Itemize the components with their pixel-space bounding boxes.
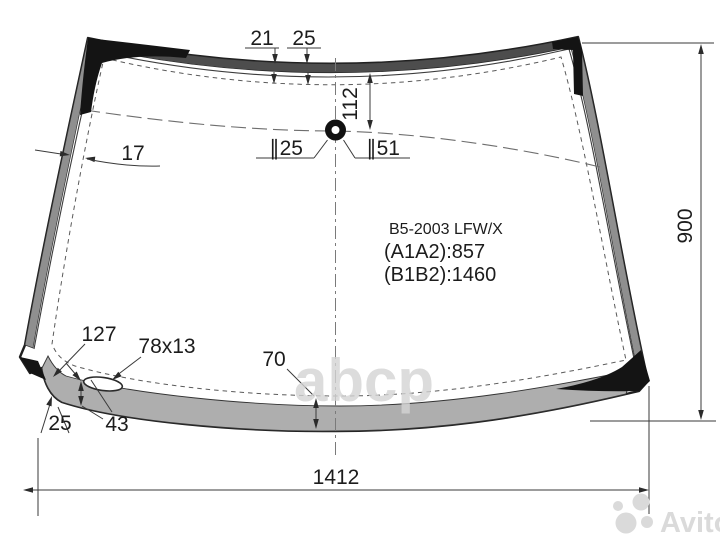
dim-label-21: 21: [250, 27, 273, 50]
dim-label-25-top: 25: [292, 27, 315, 50]
windshield-technical-drawing: 21 25 112 17 ∥25 ∥51 B5-2003 LFW/X (: [0, 0, 720, 540]
dim-label-900: 900: [674, 208, 697, 243]
dim-label-17: 17: [121, 142, 144, 165]
dim-label-78x13: 78x13: [138, 335, 195, 358]
spec-a1a2: (A1A2):857: [384, 241, 485, 263]
dim-label-112: 112: [339, 87, 362, 120]
watermark-abcp: abcp: [294, 347, 434, 414]
dim-label-43: 43: [105, 413, 128, 436]
dim-label-d51: ∥51: [366, 137, 400, 160]
drawing-canvas: 21 25 112 17 ∥25 ∥51 B5-2003 LFW/X (: [0, 0, 720, 540]
dim-label-25-corner: 25: [48, 412, 71, 435]
avito-logo-icon: [613, 494, 653, 534]
dim-label-127: 127: [81, 323, 116, 346]
dim-label-d25: ∥25: [269, 137, 303, 160]
spec-b1b2: (B1B2):1460: [384, 264, 496, 286]
dim-label-70: 70: [262, 348, 285, 371]
watermark-avito-text: Avito: [660, 507, 720, 539]
dim-label-1412: 1412: [313, 466, 360, 489]
part-code: B5-2003 LFW/X: [389, 221, 503, 238]
avito-watermark: Avito: [613, 494, 720, 540]
sensor-hole-inner: [332, 126, 340, 134]
